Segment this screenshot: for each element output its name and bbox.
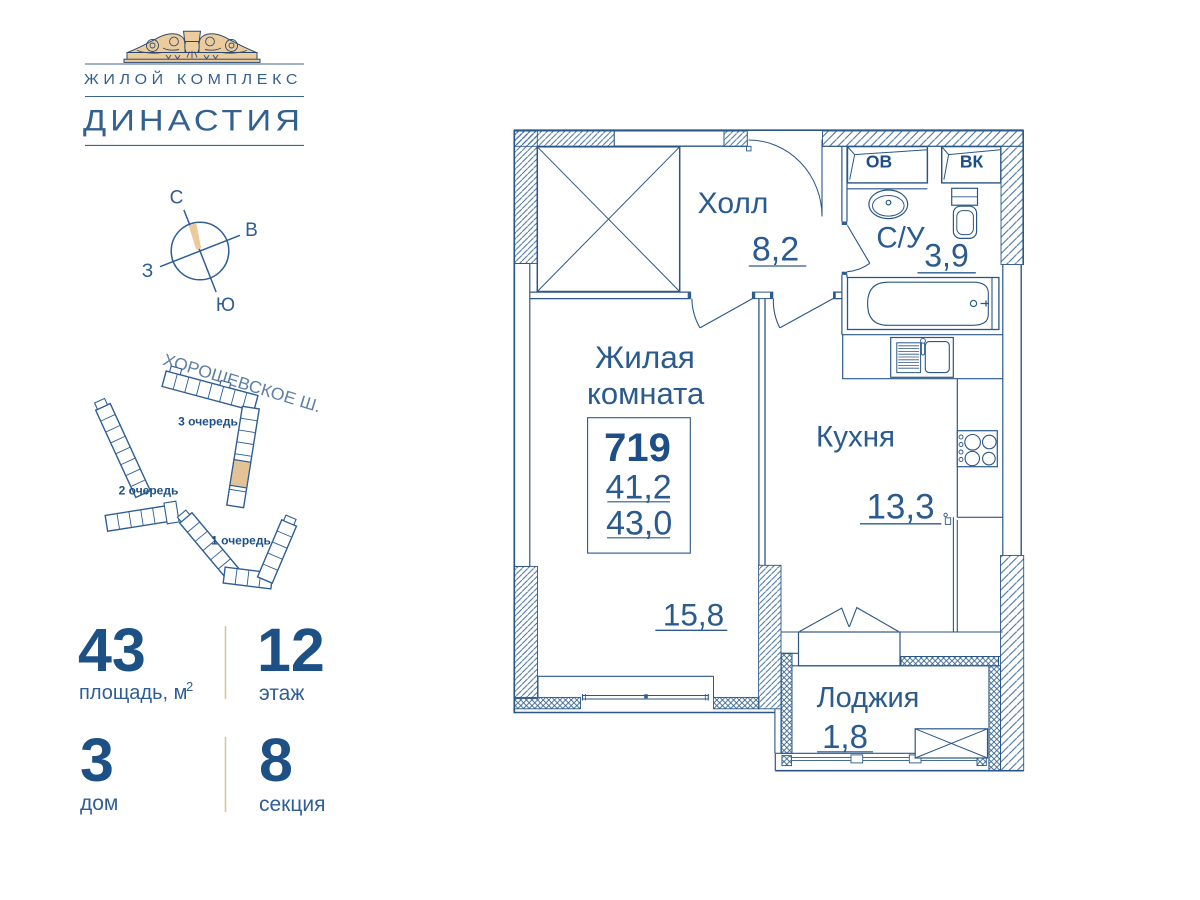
svg-text:С: С <box>170 188 184 209</box>
svg-text:15,8: 15,8 <box>663 597 724 633</box>
svg-text:этаж: этаж <box>259 682 304 705</box>
svg-text:12: 12 <box>257 616 325 684</box>
svg-text:719: 719 <box>604 426 671 470</box>
svg-text:8: 8 <box>259 726 293 794</box>
svg-text:2: 2 <box>186 679 193 694</box>
svg-text:43,0: 43,0 <box>606 504 672 542</box>
svg-text:Жилая: Жилая <box>595 339 695 375</box>
svg-text:43: 43 <box>78 616 146 684</box>
svg-text:площадь, м: площадь, м <box>79 682 187 704</box>
svg-text:дом: дом <box>80 792 118 815</box>
svg-text:8,2: 8,2 <box>752 231 799 269</box>
svg-text:секция: секция <box>259 793 326 816</box>
svg-text:41,2: 41,2 <box>606 469 672 507</box>
svg-text:ЖИЛОЙ КОМПЛЕКС: ЖИЛОЙ КОМПЛЕКС <box>84 70 302 88</box>
svg-text:Лоджия: Лоджия <box>817 682 920 714</box>
svg-text:1 очередь: 1 очередь <box>211 534 271 548</box>
svg-text:3,9: 3,9 <box>924 238 968 274</box>
svg-text:З: З <box>142 261 153 282</box>
svg-text:В: В <box>245 220 258 241</box>
svg-text:2 очередь: 2 очередь <box>119 484 179 498</box>
svg-text:комната: комната <box>587 376 705 411</box>
svg-text:1,8: 1,8 <box>822 718 868 755</box>
svg-text:3 очередь: 3 очередь <box>178 415 238 429</box>
svg-text:3: 3 <box>80 726 114 794</box>
svg-text:ДИНАСТИЯ: ДИНАСТИЯ <box>83 105 304 138</box>
svg-text:ОВ: ОВ <box>866 152 892 172</box>
svg-text:13,3: 13,3 <box>866 488 934 527</box>
svg-text:Кухня: Кухня <box>816 421 895 454</box>
svg-text:Холл: Холл <box>698 187 769 220</box>
svg-text:Ю: Ю <box>216 295 235 316</box>
svg-text:ВК: ВК <box>960 152 984 172</box>
svg-text:С/У: С/У <box>876 222 925 255</box>
